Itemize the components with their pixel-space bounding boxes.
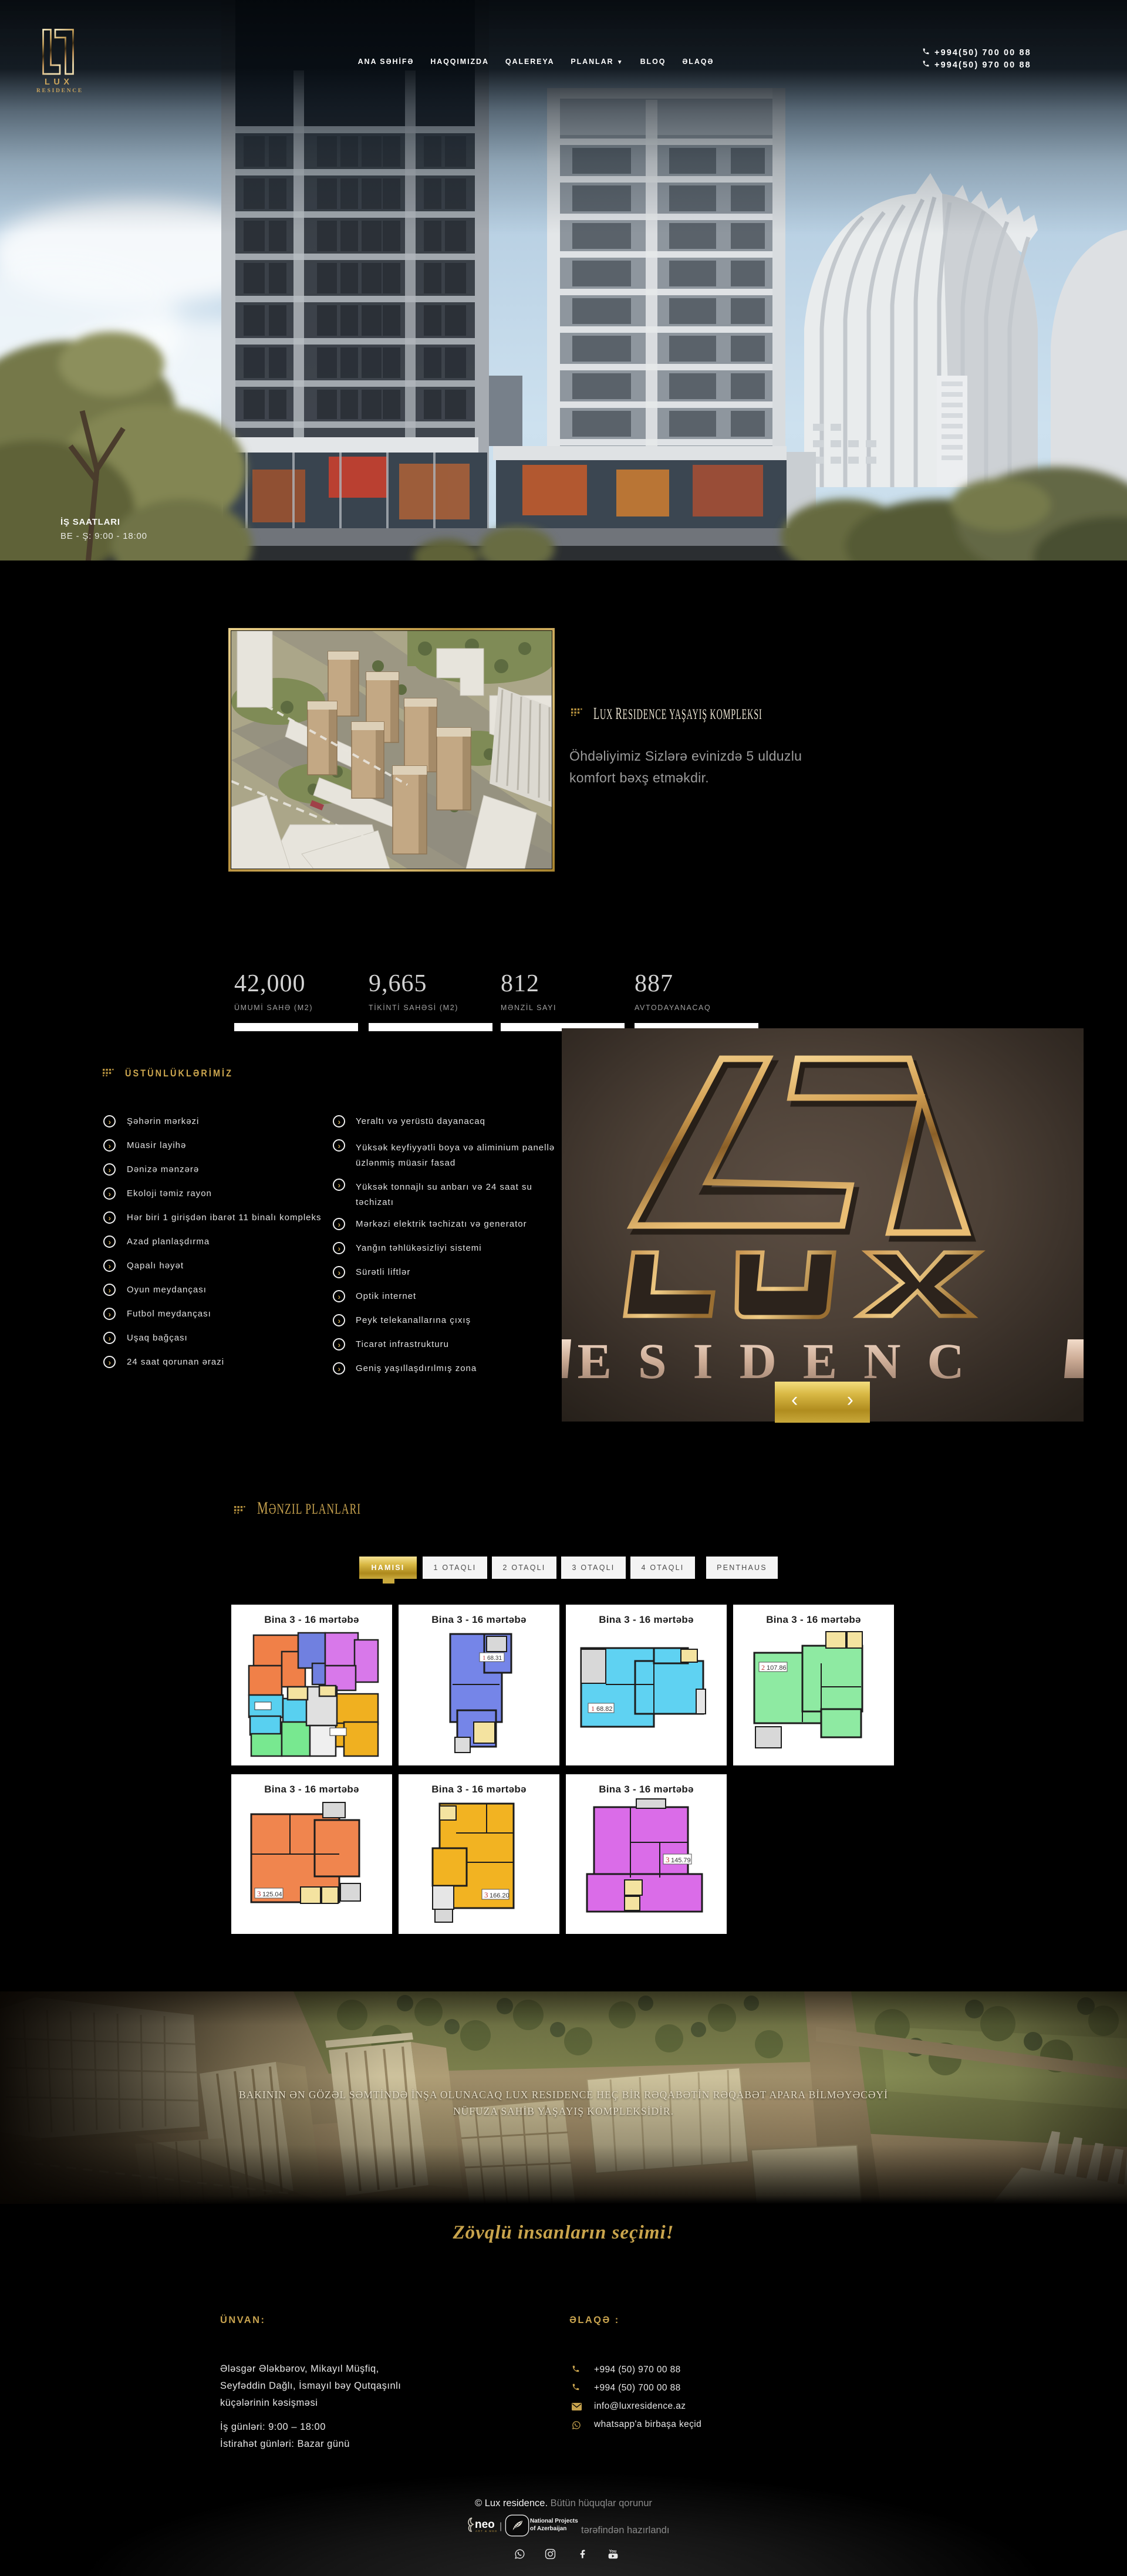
svg-text:neo: neo	[475, 2518, 495, 2531]
svg-text:3: 3	[484, 1890, 488, 1899]
svg-text:ESIDENC: ESIDENC	[578, 1333, 991, 1389]
svg-text:68.82: 68.82	[596, 1706, 613, 1713]
svg-text:166.20: 166.20	[490, 1892, 509, 1899]
svg-text:107.86: 107.86	[767, 1665, 787, 1672]
svg-text:145.79: 145.79	[671, 1857, 691, 1864]
svg-text:125.04: 125.04	[262, 1891, 282, 1898]
svg-text:68.31: 68.31	[487, 1655, 502, 1662]
svg-text:RESIDENCE: RESIDENCE	[36, 88, 83, 94]
svg-text:3: 3	[666, 1855, 670, 1864]
svg-text:1: 1	[591, 1704, 595, 1713]
svg-text:1: 1	[482, 1655, 486, 1662]
svg-text:3: 3	[257, 1889, 261, 1898]
svg-text:LUX: LUX	[45, 77, 73, 87]
svg-text:You: You	[609, 2550, 617, 2554]
svg-text:2: 2	[761, 1663, 765, 1672]
svg-text:ART & MEDIA: ART & MEDIA	[475, 2530, 497, 2533]
